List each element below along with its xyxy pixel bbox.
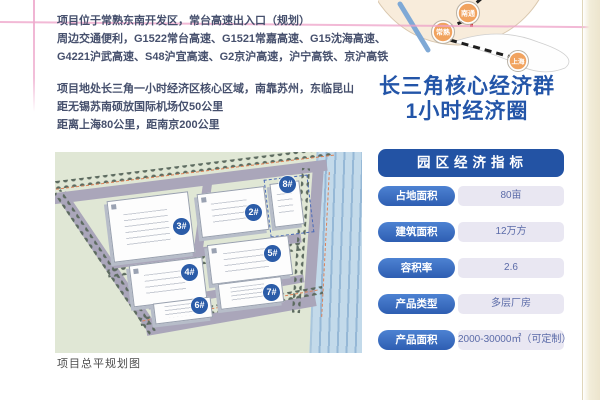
- city-marker-shanghai: 上海: [508, 51, 529, 72]
- building-entrance-icon: [211, 248, 217, 254]
- building-entrance-icon: [201, 197, 207, 203]
- distance-line-3: 距离上海80公里，距南京200公里: [57, 116, 402, 134]
- city-label: 南通: [461, 9, 476, 18]
- headline-line-2: 1小时经济圈: [368, 99, 566, 124]
- headline: 长三角核心经济群 1小时经济圈: [368, 74, 566, 124]
- indicator-label: 建筑面积: [378, 222, 455, 242]
- brochure-page: 项目位于常熟东南开发区，常台高速出入口（规划） 周边交通便利，G1522常台高速…: [0, 0, 600, 400]
- building-entrance-icon: [111, 204, 117, 210]
- building-spec-text: [277, 192, 295, 216]
- pink-rule-vertical: [33, 0, 35, 112]
- indicator-label: 产品类型: [378, 294, 455, 314]
- building-badge: 3#: [173, 218, 190, 235]
- indicator-row: 产品面积 2000-30000㎡（可定制）: [378, 330, 564, 350]
- building-spec-text: [223, 248, 269, 273]
- site-plan: 2# 3# 4# 5# 6# 7# 8#: [55, 152, 362, 353]
- paragraph-distance: 项目地处长三角一小时经济区核心区域，南靠苏州，东临昆山 距无锡苏南硕放国际机场仅…: [57, 80, 402, 134]
- indicator-label: 占地面积: [378, 186, 455, 206]
- city-marker-nantong: 南通: [457, 2, 480, 25]
- building-spec-text: [144, 270, 186, 295]
- indicator-value: 多层厂房: [458, 294, 564, 314]
- indicator-value: 12万方: [458, 222, 564, 242]
- indicator-row: 建筑面积 12万方: [378, 222, 564, 242]
- building-badge: 7#: [263, 284, 280, 301]
- indicator-row: 占地面积 80亩: [378, 186, 564, 206]
- city-label: 上海: [512, 57, 526, 66]
- indicator-label: 容积率: [378, 258, 455, 278]
- economic-circle-map: 南通 常熟 上海: [378, 0, 600, 82]
- indicators-title: 园区经济指标: [378, 149, 564, 177]
- building-spec-text: [211, 199, 250, 225]
- indicator-value: 2000-30000㎡（可定制）: [458, 330, 564, 350]
- location-line-1: 项目位于常熟东南开发区，常台高速出入口（规划）: [57, 12, 402, 30]
- city-label: 常熟: [436, 28, 450, 37]
- indicator-row: 容积率 2.6: [378, 258, 564, 278]
- building-badge: 8#: [279, 176, 296, 193]
- plan-caption: 项目总平规划图: [57, 355, 141, 371]
- headline-line-1: 长三角核心经济群: [368, 74, 566, 99]
- building-badge: 6#: [191, 297, 208, 314]
- location-line-2: 周边交通便利，G1522常台高速、G1521常嘉高速、G15沈海高速、: [57, 30, 402, 48]
- indicator-value: 2.6: [458, 258, 564, 278]
- location-line-3: G4221沪武高速、S48沪宜高速、G2京沪高速，沪宁高铁、京沪高铁: [57, 48, 402, 66]
- building-entrance-icon: [133, 269, 139, 275]
- indicator-row: 产品类型 多层厂房: [378, 294, 564, 314]
- paragraph-location: 项目位于常熟东南开发区，常台高速出入口（规划） 周边交通便利，G1522常台高速…: [57, 12, 402, 66]
- building-spec-text: [230, 283, 266, 303]
- distance-line-1: 项目地处长三角一小时经济区核心区域，南靠苏州，东临昆山: [57, 80, 402, 98]
- indicator-value: 80亩: [458, 186, 564, 206]
- building-badge: 2#: [245, 204, 262, 221]
- building-badge: 4#: [181, 264, 198, 281]
- building-spec-text: [124, 209, 171, 245]
- building-badge: 5#: [264, 245, 281, 262]
- distance-line-2: 距无锡苏南硕放国际机场仅50公里: [57, 98, 402, 116]
- indicator-label: 产品面积: [378, 330, 455, 350]
- page-edge-shadow: [582, 0, 600, 400]
